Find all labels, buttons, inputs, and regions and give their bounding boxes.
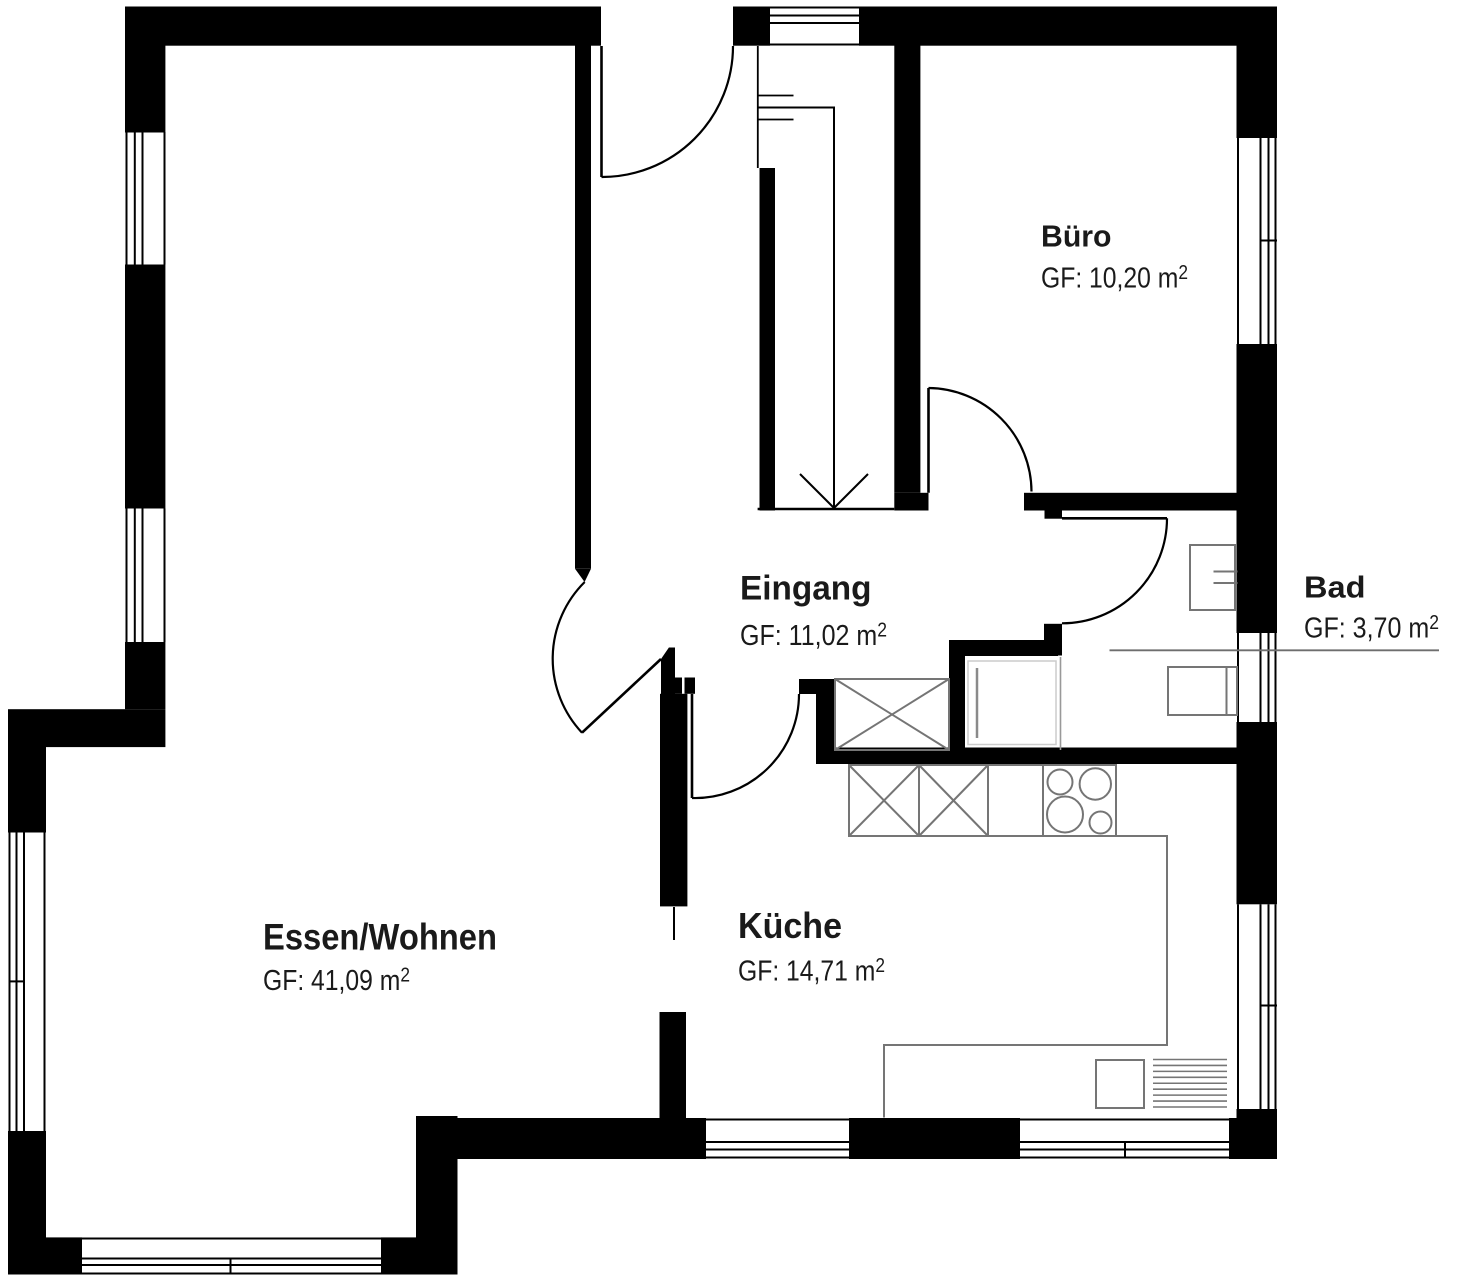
svg-text:GF: 10,20 m2: GF: 10,20 m2 (1041, 262, 1188, 295)
svg-text:Büro: Büro (1041, 219, 1112, 253)
svg-text:Küche: Küche (738, 905, 842, 946)
svg-text:GF: 3,70 m2: GF: 3,70 m2 (1304, 612, 1439, 645)
svg-text:GF: 41,09 m2: GF: 41,09 m2 (263, 965, 410, 998)
svg-text:GF: 14,71 m2: GF: 14,71 m2 (738, 955, 885, 988)
svg-text:Essen/Wohnen: Essen/Wohnen (263, 916, 497, 958)
svg-text:GF: 11,02 m2: GF: 11,02 m2 (740, 619, 887, 652)
svg-text:Eingang: Eingang (740, 570, 872, 608)
svg-text:Bad: Bad (1304, 569, 1366, 604)
